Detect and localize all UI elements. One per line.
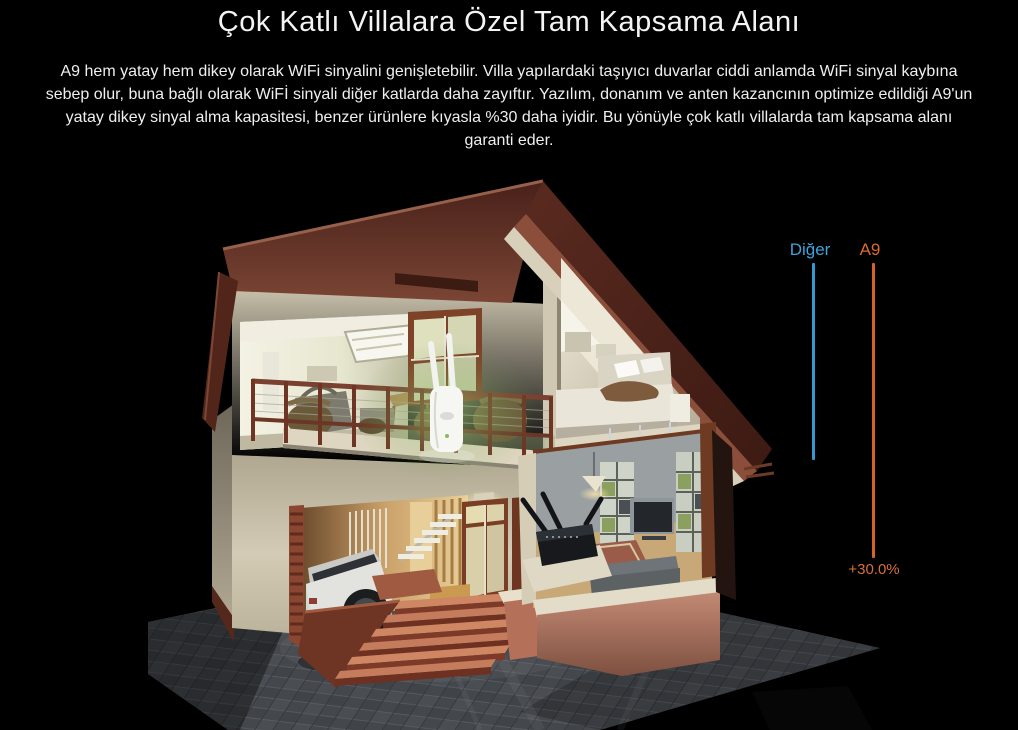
- diger-coverage-line: [812, 263, 815, 460]
- garage-louver-pillar: [289, 505, 304, 650]
- series-label-a9: A9: [843, 240, 897, 260]
- series-label-diger: Diğer: [779, 240, 841, 260]
- villa-scene: Diğer A9 +30.0%: [0, 0, 1018, 730]
- gain-percентage-label: +30.0%: [836, 561, 912, 578]
- villa-illustration: [0, 0, 1018, 730]
- a9-coverage-line: [872, 263, 875, 558]
- promo-page: Çok Katlı Villalara Özel Tam Kapsama Ala…: [0, 0, 1018, 730]
